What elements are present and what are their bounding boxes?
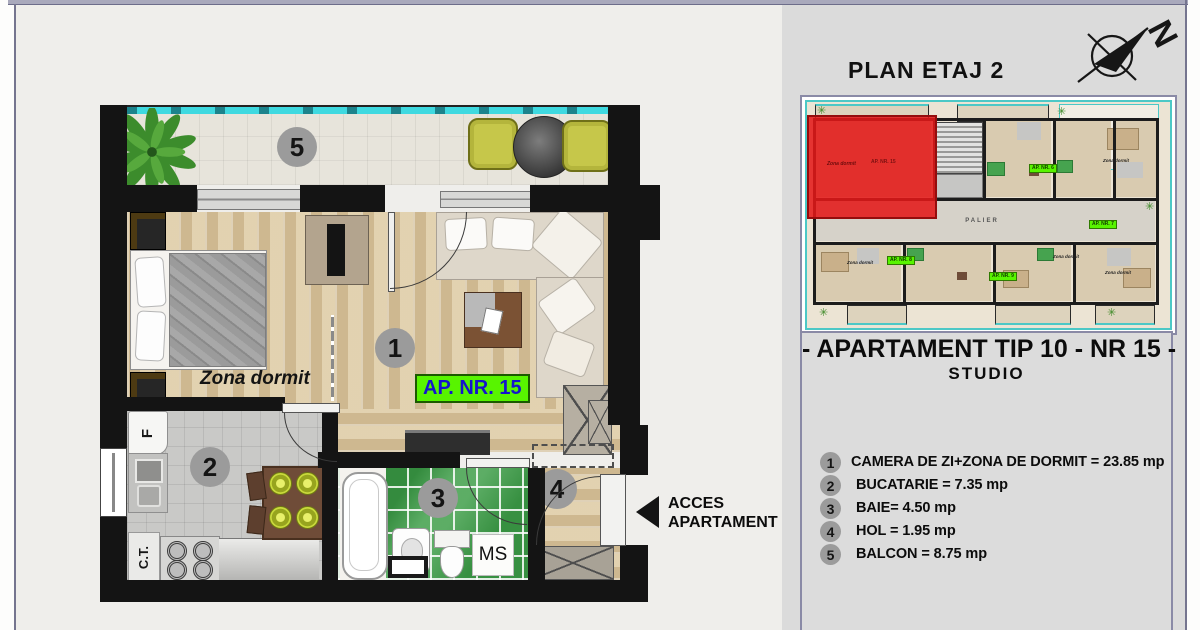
- pillow: [135, 310, 167, 361]
- mini-kitchen: [1117, 162, 1143, 178]
- legend-number: 2: [820, 475, 841, 496]
- tv-icon: [327, 224, 345, 276]
- apartment-subtitle-text: STUDIO: [948, 364, 1024, 383]
- mini-zona-label: Zona dormit: [1103, 158, 1129, 163]
- sofa-pillow: [491, 217, 535, 252]
- window: [100, 448, 127, 517]
- dining-chair: [247, 505, 267, 535]
- mini-plant-icon: ✳: [1057, 107, 1066, 117]
- wall: [318, 452, 460, 468]
- apartment-info-box: - APARTAMENT TIP 10 - NR 15 - STUDIO 1 C…: [800, 331, 1173, 630]
- bed-duvet: [169, 253, 266, 367]
- sofa-right: [536, 277, 604, 398]
- legend-item-text: BUCATARIE = 7.35 mp: [856, 477, 1008, 493]
- mini-zona-label: Zona dormit: [847, 260, 873, 265]
- bathroom-door-leaf: [466, 458, 530, 468]
- mini-balcony: [847, 305, 907, 325]
- sink-basin: [135, 459, 163, 483]
- mini-plant-icon: ✳: [1107, 308, 1116, 318]
- sofa-pillow: [530, 207, 604, 280]
- bathtub: [342, 472, 388, 580]
- mini-zona-label: Zona dormit: [1053, 254, 1079, 259]
- mini-ap9-label: AP. NR. 9: [989, 272, 1017, 281]
- legend-item: HOL = 1.95 mp: [856, 523, 956, 539]
- bed: [130, 250, 267, 370]
- legend-item: BUCATARIE = 7.35 mp: [856, 477, 1008, 493]
- sleeping-zone-text: Zona dormit: [200, 368, 310, 389]
- access-label-line1: ACCES: [668, 494, 778, 513]
- sink-basin: [137, 485, 161, 507]
- mini-plan-box: ✳ ✳ ✳ ✳ ✳ Zona dormit AP. NR. 15 PALIER …: [800, 95, 1177, 335]
- fridge: F: [128, 411, 168, 455]
- wall: [608, 185, 640, 425]
- room-number-balcony-label: 5: [290, 132, 304, 163]
- room-number-kitchen-label: 2: [203, 452, 217, 483]
- room-number-bath: 3: [418, 478, 458, 518]
- coffee-table: [464, 292, 522, 348]
- sofa-pillow: [537, 276, 598, 335]
- legend-number-text: 2: [827, 478, 835, 494]
- floor-title: PLAN ETAJ 2: [848, 57, 1004, 84]
- bath-mat: [388, 556, 428, 578]
- mini-wall: [903, 242, 906, 304]
- mini-bed: [1107, 128, 1139, 150]
- apartment-subtitle: STUDIO: [802, 364, 1171, 384]
- mini-wall: [1073, 242, 1076, 304]
- wall: [100, 580, 648, 602]
- mini-wall: [813, 302, 1159, 305]
- legend-item-text: BALCON = 8.75 mp: [856, 546, 987, 562]
- wall: [100, 185, 197, 212]
- mini-ap6-label: AP. NR. 6: [1029, 164, 1057, 173]
- mini-bed: [821, 252, 849, 272]
- kitchen-sink-unit: [128, 453, 168, 513]
- mini-wall: [813, 242, 1158, 245]
- mini-palier-label: PALIER: [937, 218, 1027, 224]
- left-rule: [14, 4, 16, 630]
- mini-ap7-label: AP. NR. 7: [1089, 220, 1117, 229]
- glass-partition: [331, 315, 334, 401]
- kitchen-counter: [219, 538, 319, 581]
- magazine: [481, 307, 504, 334]
- boiler-unit: C.T.: [128, 532, 160, 582]
- legend-number-text: 4: [827, 524, 835, 540]
- kitchen-door-leaf: [282, 403, 340, 413]
- mini-bathroom: [1037, 248, 1054, 261]
- legend-item-text: CAMERA DE ZI+ZONA DE DORMIT = 23.85 mp: [851, 454, 1164, 470]
- mini-plant-icon: ✳: [1145, 202, 1154, 212]
- nightstand: [130, 212, 166, 250]
- sliding-door: [197, 189, 302, 210]
- legend-item-text: BAIE= 4.50 mp: [856, 500, 956, 516]
- window-frame: [112, 453, 115, 512]
- apartment-title: - APARTAMENT TIP 10 - NR 15 -: [802, 335, 1171, 364]
- balcony-chair: [562, 120, 612, 172]
- main-floor-plan: 5 Zona dormit 1 AP. NR. 15: [100, 100, 665, 605]
- fridge-label: F: [139, 428, 156, 437]
- legend-item: BAIE= 4.50 mp: [856, 500, 956, 516]
- boiler-label: C.T.: [137, 545, 152, 568]
- top-rule: [8, 0, 1188, 5]
- wall: [530, 185, 612, 212]
- bathtub-inner: [349, 479, 379, 571]
- wall: [620, 545, 648, 585]
- wall: [620, 425, 648, 475]
- floor-plan-page: 5 Zona dormit 1 AP. NR. 15: [0, 0, 1200, 630]
- right-rule: [1185, 0, 1187, 630]
- dashed-storage: [532, 444, 614, 468]
- compass-icon: N: [1066, 6, 1178, 92]
- stove: [160, 536, 220, 582]
- mini-zona-label: Zona dormit: [1105, 270, 1131, 275]
- compass-north-letter: N: [1140, 14, 1178, 54]
- apartment-number-tag: AP. NR. 15: [415, 374, 530, 403]
- mini-table: [957, 272, 967, 280]
- pillow: [134, 256, 166, 308]
- mini-kitchen: [1017, 122, 1041, 140]
- legend-item: BALCON = 8.75 mp: [856, 546, 987, 562]
- washing-machine: MS: [472, 534, 514, 576]
- dining-table: [262, 466, 327, 540]
- mini-ap8-label: AP. NR. 8: [887, 256, 915, 265]
- mini-bathroom: [1057, 160, 1073, 173]
- mini-wall: [983, 118, 986, 200]
- mini-red-apartment-label: AP. NR. 15: [871, 159, 896, 165]
- mini-red-zona-label: Zona dormit: [827, 161, 856, 167]
- mini-balcony: [1095, 305, 1155, 325]
- mini-kitchen: [1107, 248, 1131, 266]
- legend-number: 5: [820, 544, 841, 565]
- access-arrow-icon: [636, 496, 659, 528]
- sliding-window: [440, 191, 532, 208]
- floor-title-text: PLAN ETAJ 2: [848, 57, 1004, 83]
- wall: [300, 185, 385, 212]
- room-number-kitchen: 2: [190, 447, 230, 487]
- mini-elevator: [936, 174, 983, 198]
- wall: [608, 105, 640, 185]
- room-number-bath-label: 3: [431, 483, 445, 514]
- legend-item: CAMERA DE ZI+ZONA DE DORMIT = 23.85 mp: [851, 454, 1164, 470]
- apartment-title-text: - APARTAMENT TIP 10 - NR 15 -: [802, 335, 1176, 363]
- access-label-line2: APARTAMENT: [668, 513, 778, 532]
- access-label: ACCES APARTAMENT: [668, 494, 778, 532]
- highlighted-apartment: Zona dormit AP. NR. 15: [807, 115, 937, 219]
- sofa-pillow: [542, 330, 596, 379]
- washing-machine-label: MS: [479, 544, 508, 566]
- legend-item-text: HOL = 1.95 mp: [856, 523, 956, 539]
- legend-number: 3: [820, 498, 841, 519]
- legend-number: 1: [820, 452, 841, 473]
- balcony-chair: [468, 118, 518, 170]
- mini-staircase: [936, 122, 983, 174]
- entry-door-leaf: [600, 474, 626, 546]
- wall: [100, 397, 285, 411]
- legend-number: 4: [820, 521, 841, 542]
- sleeping-zone-label: Zona dormit: [200, 368, 310, 390]
- room-number-balcony: 5: [277, 127, 317, 167]
- mini-balcony: [995, 305, 1071, 325]
- legend-number-text: 5: [827, 547, 835, 563]
- legend-number-text: 3: [827, 501, 835, 517]
- toilet-bowl: [440, 546, 464, 578]
- tv-dresser: [305, 215, 369, 285]
- legend-number-text: 1: [827, 455, 835, 471]
- mini-wall: [1156, 118, 1159, 305]
- mini-plan: ✳ ✳ ✳ ✳ ✳ Zona dormit AP. NR. 15 PALIER …: [805, 100, 1172, 330]
- mini-bathroom: [987, 162, 1005, 176]
- room-number-living-label: 1: [388, 333, 402, 364]
- room-number-living: 1: [375, 328, 415, 368]
- mini-wall: [1053, 118, 1056, 200]
- mini-plant-icon: ✳: [819, 308, 828, 318]
- apartment-number-text: AP. NR. 15: [423, 377, 522, 399]
